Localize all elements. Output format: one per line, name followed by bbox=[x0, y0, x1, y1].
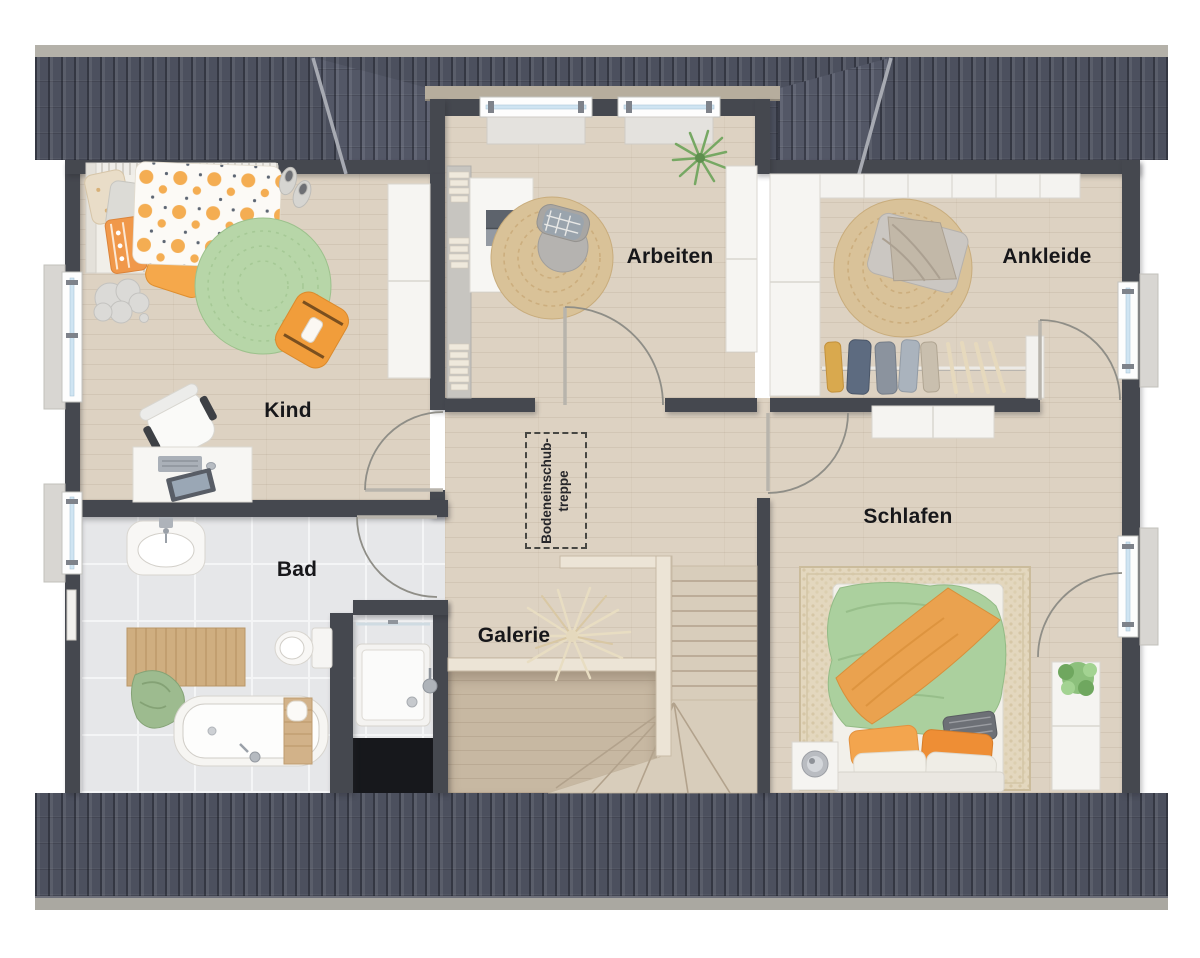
schlafen-nightstand bbox=[792, 742, 838, 790]
window-bad-left bbox=[62, 492, 82, 574]
ankleide-wardrobe-left bbox=[770, 174, 820, 396]
attic-hatch-outline: Bodeneinschub- treppe bbox=[525, 432, 587, 549]
door-arc-ankleide bbox=[1040, 320, 1120, 400]
galerie-railing bbox=[448, 556, 672, 756]
kind-slippers bbox=[276, 165, 314, 210]
kind-desk bbox=[133, 447, 252, 502]
room-label-schlafen: Schlafen bbox=[863, 505, 952, 529]
door-arc-schlafen-window bbox=[1038, 573, 1122, 657]
kind-cloud-table bbox=[94, 279, 149, 323]
window-kind-left bbox=[62, 272, 82, 402]
furniture-overlay bbox=[0, 0, 1200, 958]
door-arc-schlafen bbox=[768, 413, 848, 493]
window-dormer-1 bbox=[480, 97, 592, 144]
bad-sink bbox=[127, 517, 205, 575]
door-arc-kind bbox=[365, 412, 443, 490]
door-arc-bad bbox=[357, 517, 437, 597]
room-label-bad: Bad bbox=[277, 558, 317, 582]
window-dormer-2 bbox=[618, 97, 720, 144]
schlafen-sideboard bbox=[872, 406, 994, 438]
ankleide-wardrobe-top bbox=[820, 174, 1080, 198]
schlafen-bed bbox=[828, 582, 1006, 792]
door-arc-arbeiten bbox=[565, 307, 663, 405]
window-ankleide-right bbox=[1118, 282, 1138, 379]
bad-toilet bbox=[275, 628, 332, 668]
bad-towel-rail bbox=[67, 590, 76, 640]
arbeiten-cabinet bbox=[726, 166, 757, 352]
room-label-arbeiten: Arbeiten bbox=[627, 245, 714, 269]
arbeiten-bookshelf bbox=[447, 166, 471, 398]
room-label-ankleide: Ankleide bbox=[1002, 245, 1091, 269]
dormer-trim-boards bbox=[313, 58, 891, 174]
room-label-kind: Kind bbox=[264, 399, 311, 423]
bad-shower bbox=[356, 620, 437, 726]
room-label-galerie: Galerie bbox=[478, 624, 551, 648]
kind-wardrobe bbox=[388, 184, 430, 378]
schlafen-plant bbox=[1058, 662, 1097, 696]
window-schlafen-right bbox=[1118, 536, 1138, 637]
attic-hatch-label: Bodeneinschub- treppe bbox=[539, 438, 573, 544]
bad-bathtub bbox=[174, 696, 328, 766]
staircase bbox=[548, 566, 757, 793]
ankleide-clothes-rail bbox=[822, 336, 1044, 398]
floor-plan: Kind Arbeiten Ankleide Schlafen Bad Gale… bbox=[0, 0, 1200, 958]
